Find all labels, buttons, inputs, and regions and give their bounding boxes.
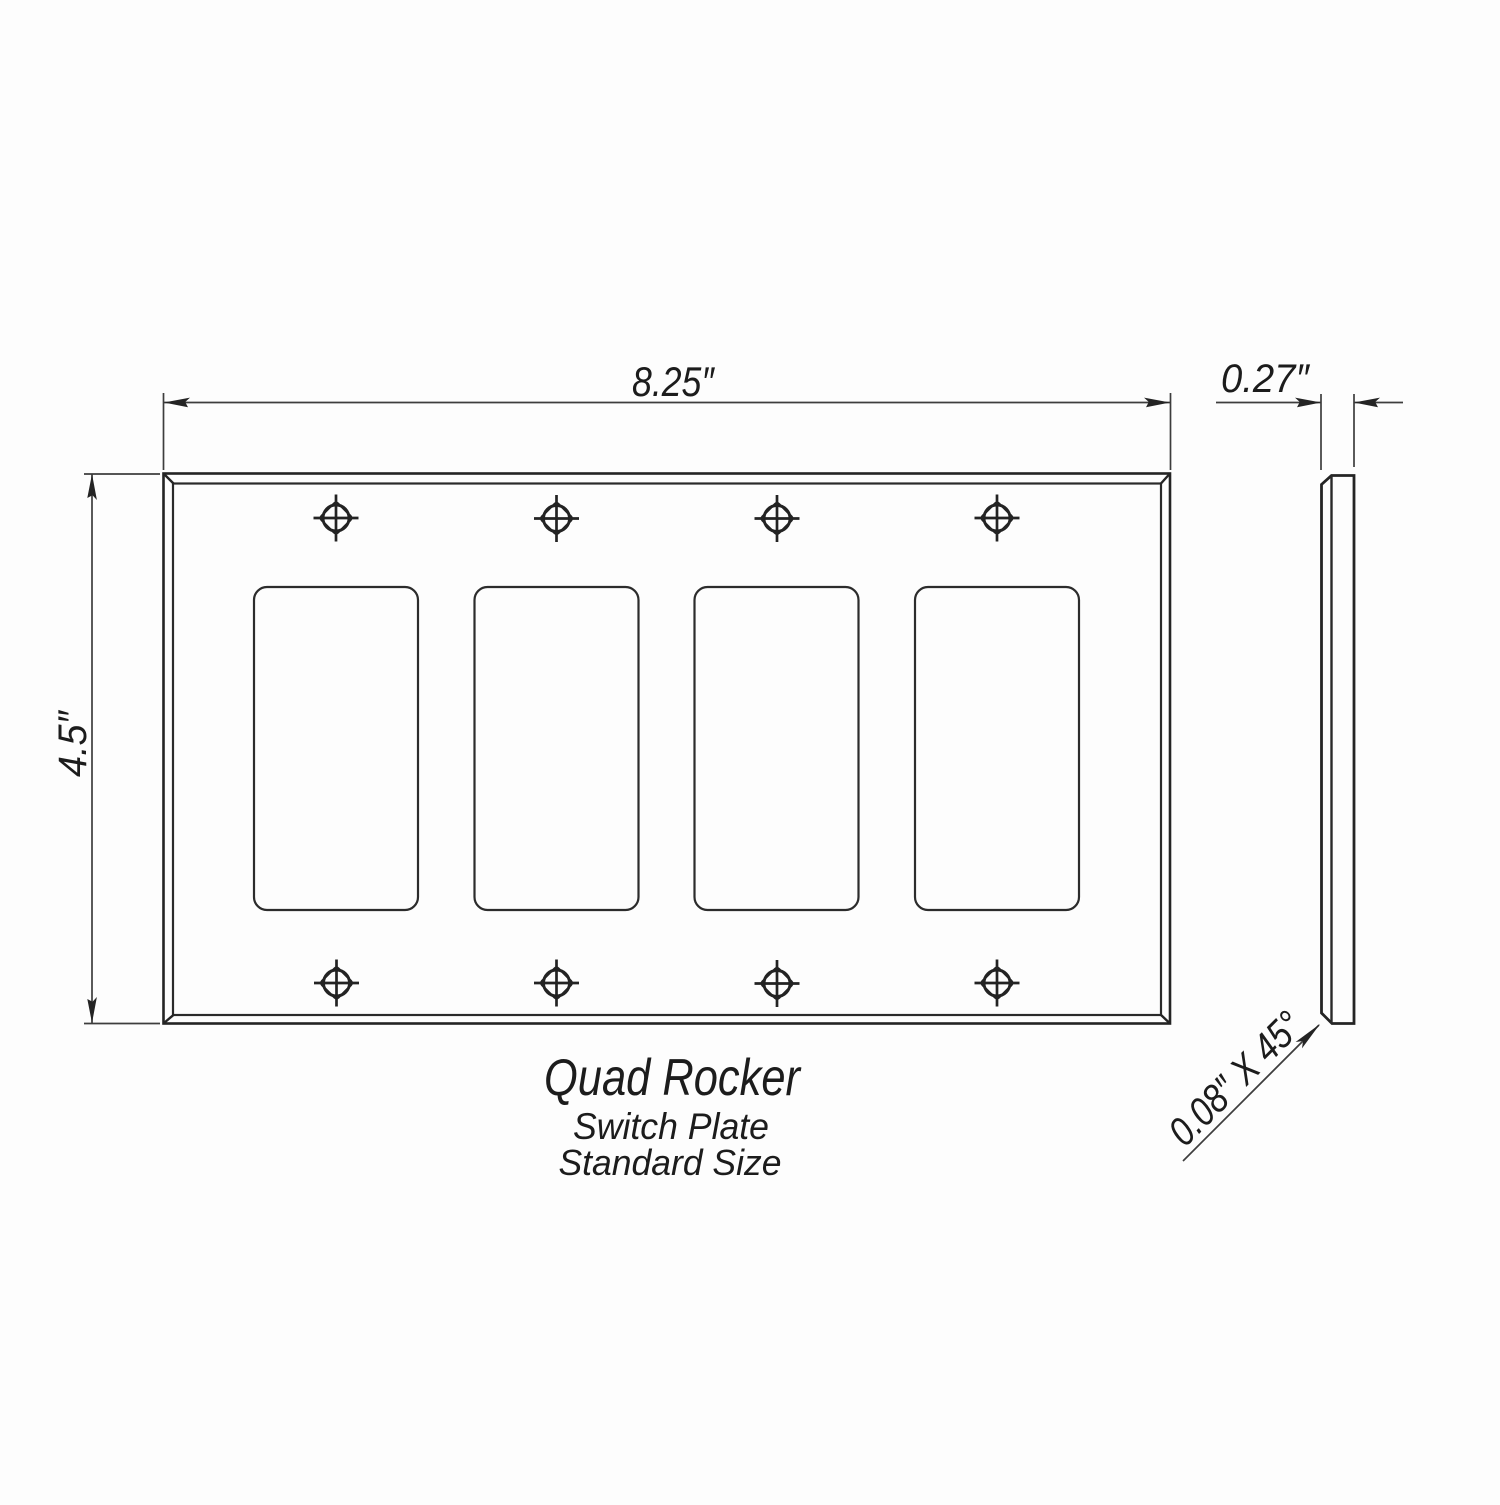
svg-text:8.25″: 8.25″ [632, 358, 716, 405]
svg-text:Switch Plate: Switch Plate [573, 1106, 769, 1147]
svg-text:Standard Size: Standard Size [559, 1142, 782, 1183]
svg-text:0.27″: 0.27″ [1221, 357, 1311, 401]
svg-text:Quad Rocker: Quad Rocker [544, 1049, 802, 1107]
svg-text:4.5″: 4.5″ [51, 709, 95, 777]
